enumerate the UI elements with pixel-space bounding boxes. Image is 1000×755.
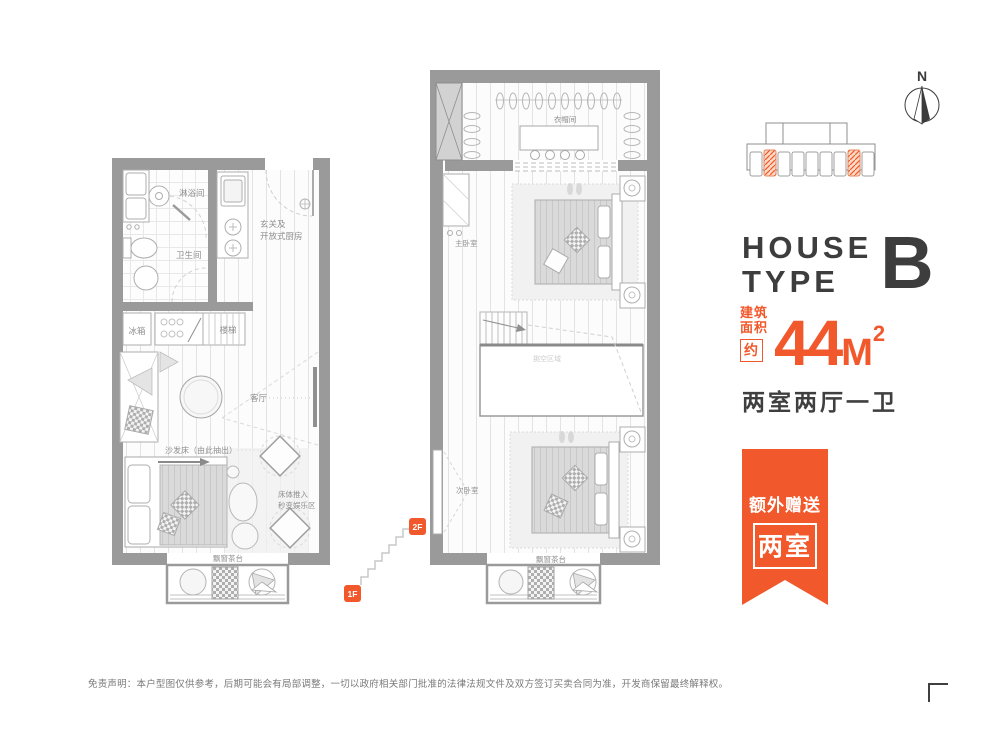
- label-bed-push-2: 秒变娱乐区: [278, 500, 316, 510]
- label-stairs: 楼梯: [219, 325, 237, 335]
- type-letter: B: [880, 226, 933, 300]
- pillow: [128, 465, 150, 503]
- bay-window-1f: [167, 565, 288, 603]
- headboard: [612, 194, 622, 290]
- disclaimer-text: 免责声明：本户型图仅供参考，后期可能会有局部调整，一切以政府相关部门批准的法律法…: [88, 676, 728, 690]
- compass: N: [905, 68, 939, 124]
- sliding-door: [515, 163, 616, 171]
- type-word: TYPE: [742, 266, 872, 297]
- label-living: 客厅: [250, 393, 268, 403]
- pillow: [598, 206, 610, 238]
- area-label-2: 面积: [740, 320, 768, 335]
- house-type-block: HOUSE TYPE B: [742, 232, 934, 300]
- side-window: [433, 450, 442, 534]
- label-void: 挑空区域: [533, 354, 561, 363]
- approx-box: 约: [740, 339, 763, 362]
- area-value: 44M2: [774, 305, 885, 382]
- area-block: 建筑 面积 约 44M2: [740, 305, 885, 382]
- pillow: [128, 506, 150, 544]
- svg-text:2F: 2F: [413, 522, 423, 532]
- compass-needle-dark: [922, 86, 930, 124]
- shaft-box: [436, 83, 462, 160]
- closet-island: [520, 126, 598, 150]
- label-bed-push-1: 床体推入: [278, 489, 308, 499]
- label-fridge: 冰箱: [128, 326, 146, 336]
- building-site-diagram: [747, 123, 875, 176]
- area-label-1: 建筑: [740, 305, 768, 320]
- pillow: [595, 493, 607, 525]
- tea-table-2f: [528, 567, 554, 599]
- label-closet: 衣帽间: [554, 114, 577, 124]
- label-shower: 淋浴间: [179, 188, 205, 198]
- highlighted-unit: [848, 150, 860, 176]
- ribbon-line2: 两室: [753, 523, 817, 569]
- stairs-connector: 1F 2F: [344, 518, 426, 602]
- compass-n-label: N: [917, 68, 927, 84]
- headboard: [609, 442, 619, 538]
- toilet-tank: [123, 238, 131, 258]
- round-table-icon: [180, 376, 222, 418]
- label-bay-tea-2f: 飘窗茶台: [536, 554, 566, 564]
- label-second: 次卧室: [456, 485, 479, 495]
- pillow: [598, 246, 610, 278]
- basin-icon: [134, 266, 158, 290]
- slippers-icon: [567, 183, 573, 195]
- sofa-mechanism: [155, 313, 203, 345]
- floorplan-poster: { "colors": { "accent": "#f1582b", "dark…: [0, 0, 1000, 750]
- label-master: 主卧室: [455, 238, 478, 248]
- slippers-icon: [559, 431, 565, 443]
- label-entry-2: 开放式厨房: [260, 231, 303, 241]
- kitchen-fixtures: [217, 172, 248, 258]
- tea-table-1f: [212, 567, 238, 599]
- ribbon-line1: 额外赠送: [742, 491, 828, 516]
- label-toilet: 卫生间: [176, 250, 202, 260]
- plan-2f: 衣帽间 主卧室 挑空区域 次卧室 飘窗茶台: [430, 70, 660, 603]
- highlighted-unit: [764, 150, 776, 176]
- label-bay-tea-1f: 飘窗茶台: [213, 553, 243, 563]
- svg-text:1F: 1F: [348, 589, 358, 599]
- bay-window-2f: [487, 565, 600, 603]
- corner-mark: [928, 683, 948, 702]
- cabinet: [443, 174, 469, 226]
- toilet-icon: [131, 238, 157, 258]
- plan-1f: 淋浴间 卫生间 玄关及 开放式厨房 冰箱 楼梯 客厅 沙发床（由此抽出） 床体推…: [112, 158, 330, 603]
- house-word: HOUSE: [742, 232, 872, 263]
- void-box: [480, 345, 643, 416]
- label-entry-1: 玄关及: [260, 219, 286, 229]
- compass-needle-light: [914, 86, 922, 124]
- pillow: [595, 453, 607, 485]
- label-sofa-bed: 沙发床（由此抽出）: [165, 445, 237, 455]
- tv-icon: [313, 367, 317, 427]
- layout-description: 两室两厅一卫: [742, 383, 898, 417]
